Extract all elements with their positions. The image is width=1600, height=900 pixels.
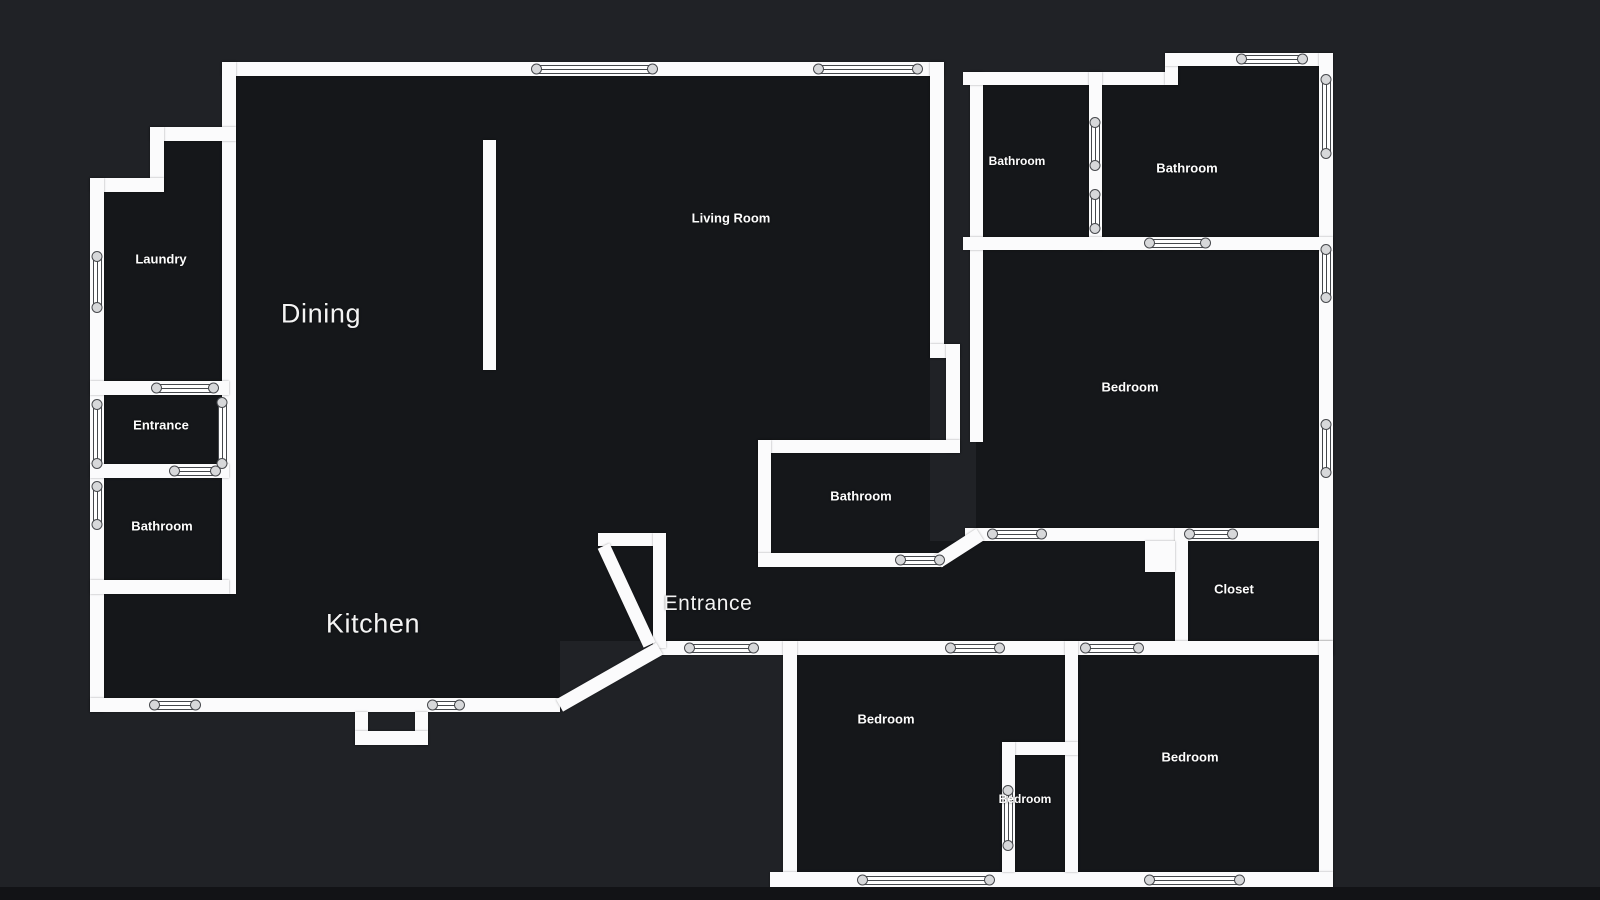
room-label-entrance-main: Entrance xyxy=(664,592,753,616)
room-label-bedroom-right: Bedroom xyxy=(1101,380,1158,395)
room-label-bedroom-small: Bedroom xyxy=(999,792,1052,806)
room-label-bathroom-top-right: Bathroom xyxy=(1156,161,1217,176)
room-label-bedroom-bottom-right: Bedroom xyxy=(1161,750,1218,765)
room-label-bathroom-center: Bathroom xyxy=(830,489,891,504)
room-labels-layer: LaundryEntranceBathroomDiningLiving Room… xyxy=(0,0,1600,900)
floor-plan-canvas: LaundryEntranceBathroomDiningLiving Room… xyxy=(0,0,1600,900)
room-label-dining: Dining xyxy=(281,299,361,330)
room-label-kitchen: Kitchen xyxy=(326,609,420,640)
room-label-entrance-left: Entrance xyxy=(133,418,189,433)
room-label-bathroom-top-left: Bathroom xyxy=(989,154,1046,168)
bottom-shadow-strip xyxy=(0,887,1600,900)
room-label-closet: Closet xyxy=(1214,582,1254,597)
room-label-bathroom-left: Bathroom xyxy=(131,519,192,534)
room-label-living-room: Living Room xyxy=(692,211,771,226)
room-label-laundry: Laundry xyxy=(135,252,186,267)
room-label-bedroom-bottom-left: Bedroom xyxy=(857,712,914,727)
